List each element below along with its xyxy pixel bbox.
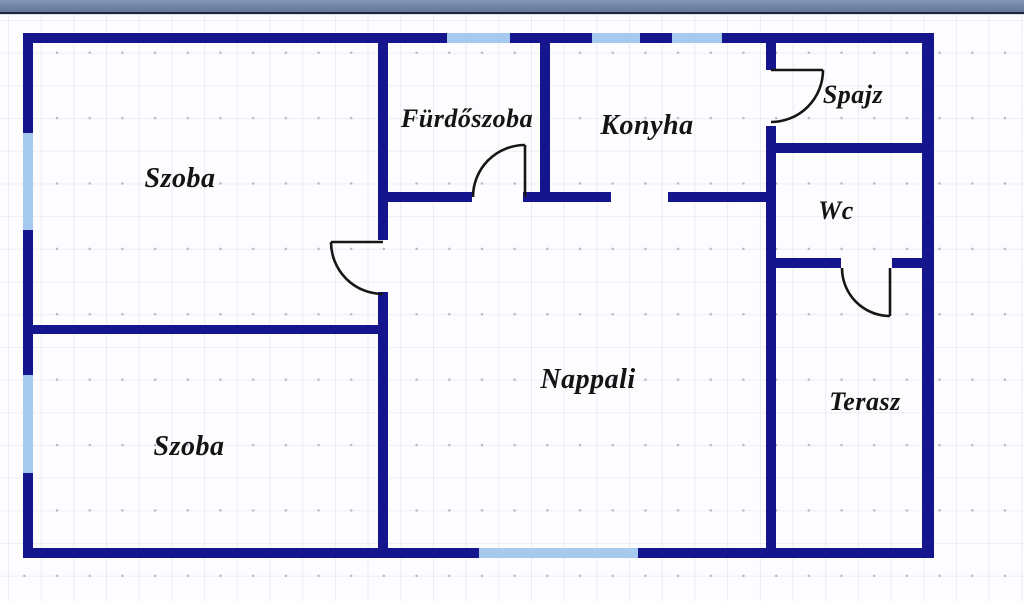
wall-segment [33, 325, 378, 334]
room-label-terasz: Terasz [829, 387, 900, 417]
wall-segment [722, 33, 934, 43]
floorplan-canvas: Szoba Fürdőszoba Konyha Spajz Wc Nappali… [0, 15, 1024, 601]
wall-segment [23, 473, 33, 558]
wall-segment [23, 230, 33, 375]
wall-segment [640, 33, 672, 43]
wall-segment [668, 192, 766, 202]
wall-segment [766, 43, 776, 70]
window-segment [479, 548, 638, 558]
wc-door-swing-arc [842, 268, 890, 316]
wall-segment [378, 292, 388, 548]
wall-segment [23, 33, 447, 43]
szoba-door-swing-arc [331, 242, 383, 294]
wall-segment [922, 33, 934, 558]
room-label-szoba-2: Szoba [154, 431, 225, 463]
wall-segment [776, 258, 841, 268]
window-segment [447, 33, 510, 43]
wall-segment [766, 126, 776, 548]
wall-segment [388, 192, 472, 202]
window-segment [592, 33, 640, 43]
wall-segment [892, 258, 922, 268]
room-label-spajz: Spajz [823, 80, 883, 110]
spajz-door-swing-arc [771, 70, 823, 122]
wall-segment [776, 143, 922, 153]
wall-segment [510, 33, 592, 43]
wall-segment [523, 192, 611, 202]
room-label-furdoszoba: Fürdőszoba [401, 104, 533, 134]
wall-segment [23, 33, 33, 133]
room-label-wc: Wc [818, 196, 854, 226]
room-label-konyha: Konyha [600, 110, 693, 142]
wall-segment [23, 548, 479, 558]
wall-segment [540, 43, 550, 202]
window-segment [23, 133, 33, 230]
furdoszoba-door-swing-arc [473, 145, 525, 197]
room-label-szoba-1: Szoba [145, 163, 216, 195]
wall-segment [378, 43, 388, 240]
room-label-nappali: Nappali [540, 364, 635, 396]
window-segment [672, 33, 722, 43]
wall-segment [638, 548, 934, 558]
floorplan: Szoba Fürdőszoba Konyha Spajz Wc Nappali… [0, 0, 1024, 601]
window-segment [23, 375, 33, 473]
